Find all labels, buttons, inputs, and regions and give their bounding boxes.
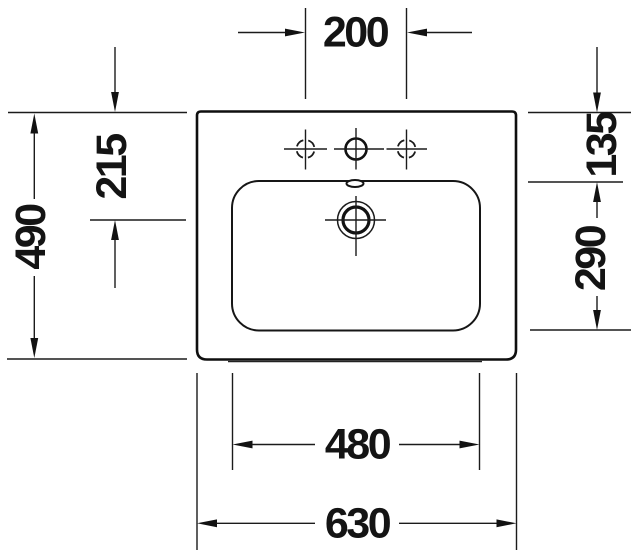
dimension-label-290: 290 bbox=[567, 225, 615, 291]
tap-hole-right-optional-icon bbox=[387, 130, 428, 170]
dimension-label-215: 215 bbox=[88, 134, 136, 200]
dimension-label-630: 630 bbox=[325, 499, 391, 547]
overflow-slot-icon bbox=[347, 180, 364, 187]
dimension-tap-hole-spacing: 200 bbox=[238, 9, 472, 57]
tap-hole-center-icon bbox=[334, 128, 384, 170]
dimension-label-490: 490 bbox=[7, 204, 55, 270]
technical-drawing-canvas: 200 490 215 135 290 480 bbox=[0, 0, 632, 552]
extension-lines bbox=[7, 8, 631, 550]
drain-outlet-icon bbox=[325, 196, 386, 256]
dimension-label-200: 200 bbox=[323, 9, 389, 57]
tap-hole-left-optional-icon bbox=[284, 130, 327, 170]
dimension-overall-depth: 490 bbox=[7, 114, 55, 359]
dimension-edge-to-basin: 135 bbox=[578, 47, 626, 218]
dimension-overall-width: 630 bbox=[197, 499, 517, 547]
dimension-basin-width: 480 bbox=[233, 421, 480, 469]
dimension-label-135: 135 bbox=[578, 112, 626, 178]
dimension-label-480: 480 bbox=[325, 421, 391, 469]
dimension-edge-to-drain: 215 bbox=[88, 47, 136, 288]
dimension-basin-depth: 290 bbox=[567, 225, 615, 330]
technical-drawing-page: 200 490 215 135 290 480 bbox=[0, 0, 632, 552]
